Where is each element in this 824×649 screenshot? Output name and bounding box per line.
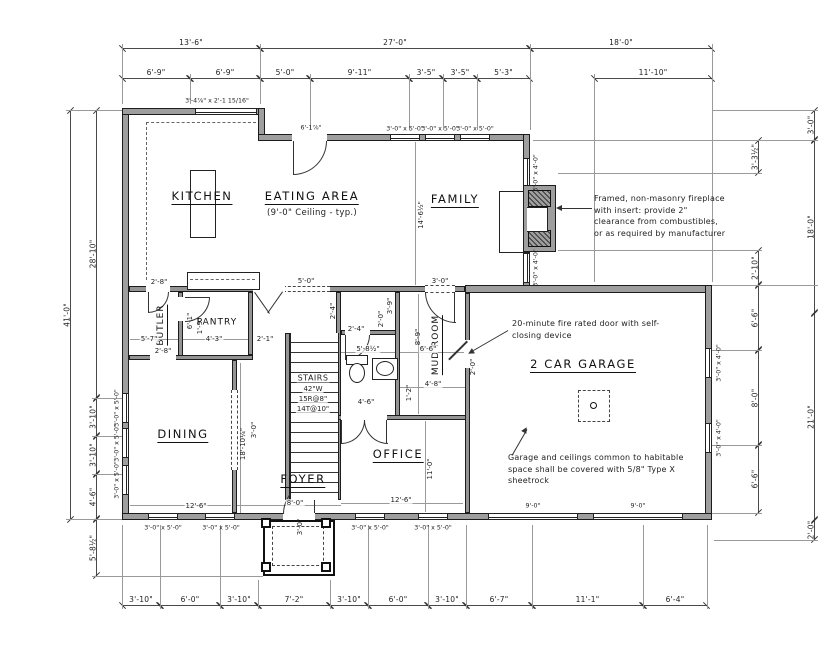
dimension-label: 3'-10" (89, 405, 98, 429)
interior-dim: 3'-0" (431, 277, 450, 285)
extension-line (466, 525, 467, 609)
interior-dim: 2'-0" (377, 310, 385, 329)
window (195, 108, 257, 115)
extension-line (530, 44, 531, 130)
dimension-line: 8'-0" (758, 350, 759, 445)
dimension-line: 27'-0" (260, 48, 530, 49)
dimension-line: 6'-0" (368, 605, 428, 606)
interior-dim: 12'-6" (184, 502, 207, 510)
extension-line (477, 74, 478, 130)
window (122, 428, 129, 458)
extension-line (712, 285, 818, 286)
dimension-label: 41'-0" (63, 303, 72, 327)
interior-dim: 3'-0" (250, 421, 258, 440)
extension-line (428, 525, 429, 609)
stoop-post (321, 518, 331, 528)
wall-segment (465, 285, 712, 293)
garage-door-label: 9'-0" (631, 503, 646, 510)
extension-line (714, 540, 818, 541)
sink-basin (376, 361, 394, 376)
interior-dim: 8'-9" (414, 328, 422, 347)
door-opening (178, 297, 183, 321)
interior-wall (248, 292, 253, 355)
interior-dim: 2'-0" (469, 358, 477, 377)
extension-line (260, 44, 261, 104)
cabinet-line (146, 122, 148, 280)
dimension-line: 21'-0" (814, 313, 815, 520)
dimension-line: 3'-10" (330, 605, 368, 606)
stairs-label: STAIRS (297, 374, 330, 383)
dimension-line: 3'-5" (409, 78, 443, 79)
dimension-line: 6'-6" (758, 285, 759, 350)
dimension-line: 11'-1" (532, 605, 643, 606)
dimension-label: 3'-10" (89, 443, 98, 467)
window-label: 3'-4⅞" x 2'-1 15/16" (185, 98, 249, 105)
window (523, 253, 530, 283)
dimension-line: 3'-10" (96, 398, 97, 436)
interior-wall (465, 293, 470, 513)
extension-line (330, 580, 331, 609)
dimension-label: 13'-6" (179, 38, 203, 47)
dimension-label: 21'-0" (807, 405, 816, 429)
window-label: 3'-0" x 4'-0" (533, 249, 540, 287)
door-label: 6'-1⅞" (300, 125, 321, 132)
dimension-label: 3'-5" (417, 68, 436, 77)
window (148, 513, 178, 520)
cabinet-line (146, 122, 256, 124)
dimension-line: 3'-5" (443, 78, 477, 79)
window (122, 465, 129, 495)
extension-line (443, 74, 444, 130)
interior-dim: 5'-8½" (355, 345, 380, 353)
dimension-line: 6'-4" (643, 605, 707, 606)
window (390, 134, 420, 141)
dimension-label: 18'-0" (807, 215, 816, 239)
interior-dim: 8'-0" (286, 499, 305, 507)
window-label: 3'-0" x 4'-0" (716, 419, 723, 457)
interior-dim: 3'-0" (296, 518, 304, 537)
window (705, 348, 712, 378)
dimension-line: 7'-2" (258, 605, 330, 606)
interior-dim: 2'-8" (150, 278, 169, 286)
interior-dim: 6'-1" (186, 312, 194, 331)
interior-dim: 12'-6" (389, 496, 412, 504)
interior-dim: 2'-8" (154, 347, 173, 355)
leader-line (560, 208, 592, 209)
dimension-line: 3'-3½" (758, 140, 759, 173)
dimension-label: 6'-9" (147, 68, 166, 77)
dimension-line: 6'-9" (122, 78, 190, 79)
dimension-line: 3'-10" (96, 436, 97, 474)
room-label-office: OFFICE (373, 447, 424, 463)
dimension-line: 9'-11" (310, 78, 409, 79)
wall-segment (122, 108, 129, 520)
fireplace-note: Framed, non-masonry fireplace with inser… (594, 193, 726, 239)
dimension-label: 2'-0" (807, 521, 816, 540)
interior-dim: 2'-4" (329, 302, 337, 321)
extension-line (258, 580, 259, 609)
dimension-line: 6'-6" (758, 445, 759, 513)
window-label: 3'-0" x 5'-0" (456, 126, 494, 133)
dimension-label: 3'-3½" (751, 143, 760, 169)
room-label-foyer: FOYER (280, 472, 325, 488)
stoop-post (261, 562, 271, 572)
fire-door-note: 20-minute fire rated door with self-clos… (512, 318, 662, 341)
stairs-riser-note: 15R@8" (298, 395, 328, 403)
interior-dim: 18'-10¼" (239, 427, 247, 461)
pantry-passage (150, 354, 176, 361)
dimension-line: 3'-10" (428, 605, 466, 606)
extension-line (122, 525, 123, 609)
floor-plan-drawing: 13'-6" 27'-0" 18'-0" 6'-9" 6'-9" 5'-0" 9… (0, 0, 824, 649)
window-label: 3'-0" x 5'-0" (144, 525, 182, 532)
dimension-label: 28'-10" (89, 240, 98, 269)
room-label-dining: DINING (157, 427, 208, 443)
wall-segment (705, 285, 712, 520)
garage-door (593, 513, 683, 520)
dimension-line: 11'-10" (594, 78, 712, 79)
stoop-post (261, 518, 271, 528)
interior-dim: 4'-3" (205, 335, 224, 343)
dimension-label: 2'-10" (751, 256, 760, 280)
door-arc (341, 420, 365, 444)
window-label: 3'-0" x 5'-0" (421, 126, 459, 133)
dimension-label: 3'-10" (129, 595, 153, 604)
stairs-tread-note: 14T@10" (296, 405, 330, 413)
column-footing-pin (590, 402, 597, 409)
dimension-line: 6'-9" (190, 78, 260, 79)
dimension-line: 5'-3" (477, 78, 530, 79)
dimension-label: 5'-3" (494, 68, 513, 77)
dimension-label: 6'-0" (389, 595, 408, 604)
dimension-label: 4'-6" (89, 487, 98, 506)
extension-line (558, 173, 762, 174)
interior-dim: 5'-7" (140, 335, 159, 343)
bifold-door-leaf (267, 291, 283, 313)
interior-dim: 2'-1" (256, 335, 275, 343)
dimension-line: 4'-6" (96, 474, 97, 519)
window (705, 423, 712, 453)
extension-line (92, 576, 263, 577)
window-label: 3'-0" x 5'-0" (114, 424, 121, 462)
extension-line (122, 44, 123, 104)
garage-door (488, 513, 578, 520)
dimension-label: 3'-0" (807, 116, 816, 135)
garage-door-label: 9'-0" (526, 503, 541, 510)
interior-dim: 11'-0" (426, 457, 434, 480)
leader-line (470, 330, 509, 353)
extension-line (712, 110, 818, 111)
dimension-label: 3'-10" (435, 595, 459, 604)
cased-opening (283, 286, 330, 292)
arrow-head (553, 205, 562, 211)
interior-dim: 4'-6" (357, 398, 376, 406)
extension-line (368, 525, 369, 609)
dimension-label: 5'-0" (276, 68, 295, 77)
dimension-line: 41'-0" (70, 110, 71, 520)
interior-dim: 1'-9" (196, 317, 204, 336)
extension-line (558, 250, 762, 251)
dimension-label: 5'-8½" (89, 534, 98, 560)
toilet-bowl (349, 363, 365, 383)
extension-line (533, 140, 818, 141)
extension-line (643, 525, 644, 609)
window (355, 513, 385, 520)
extension-line (130, 505, 231, 506)
extension-line (160, 525, 161, 609)
window-label: 3'-0" x 5'-0" (114, 389, 121, 427)
arrow-head (521, 423, 531, 434)
interior-wall (395, 292, 400, 420)
extension-line (707, 525, 708, 609)
window-label: 3'-0" x 5'-0" (114, 461, 121, 499)
window (460, 134, 490, 141)
extension-line (66, 110, 122, 111)
dimension-label: 3'-10" (337, 595, 361, 604)
room-label-family: FAMILY (431, 192, 479, 208)
kitchen-counter (187, 272, 260, 290)
interior-dim: 14'-6½" (417, 200, 425, 230)
dimension-line: 13'-6" (122, 48, 260, 49)
dimension-label: 9'-11" (348, 68, 372, 77)
stairs-width-note: 42"W (302, 385, 323, 393)
extension-line (712, 513, 762, 514)
dimension-line: 5'-8½" (96, 519, 97, 576)
room-label-garage: 2 CAR GARAGE (530, 357, 636, 373)
dimension-label: 11'-10" (639, 68, 668, 77)
door-arc (293, 141, 327, 175)
window-label: 3'-0" x 5'-0" (386, 126, 424, 133)
dimension-label: 27'-0" (383, 38, 407, 47)
window (523, 158, 530, 188)
dimension-label: 3'-10" (227, 595, 251, 604)
room-label-eating-area: EATING AREA (265, 189, 359, 205)
room-label-kitchen: KITCHEN (171, 189, 232, 205)
dimension-label: 7'-2" (285, 595, 304, 604)
interior-dim: 3'-9" (386, 297, 394, 316)
dimension-label: 6'-6" (751, 308, 760, 327)
interior-dim: 4'-8" (424, 380, 443, 388)
window (205, 513, 235, 520)
extension-line (409, 74, 410, 130)
dimension-line: 2'-10" (758, 250, 759, 285)
extension-line (418, 294, 419, 414)
extension-line (532, 525, 533, 609)
dimension-label: 3'-5" (451, 68, 470, 77)
extension-line (310, 74, 311, 130)
extension-line (66, 519, 122, 520)
dimension-line: 3'-10" (220, 605, 258, 606)
dimension-line: 6'-7" (466, 605, 532, 606)
extension-line (415, 142, 416, 285)
fireplace-masonry (528, 230, 551, 247)
dimension-label: 6'-6" (751, 470, 760, 489)
dimension-label: 11'-1" (576, 595, 600, 604)
dimension-label: 6'-0" (181, 595, 200, 604)
interior-dim: 5'-0" (297, 277, 316, 285)
stoop-post (321, 562, 331, 572)
dimension-line: 5'-0" (260, 78, 310, 79)
dimension-label: 6'-7" (490, 595, 509, 604)
interior-dim: 1'-2" (405, 384, 413, 403)
counter-line (190, 279, 255, 281)
door-arc (364, 420, 388, 444)
window (425, 134, 455, 141)
dimension-line: 3'-0" (814, 110, 815, 140)
dimension-line: 6'-0" (160, 605, 220, 606)
dimension-line: 28'-10" (96, 110, 97, 398)
window-label: 3'-0" x 4'-0" (716, 344, 723, 382)
window-label: 3'-0" x 5'-0" (414, 525, 452, 532)
dimension-label: 6'-4" (666, 595, 685, 604)
dimension-label: 6'-9" (216, 68, 235, 77)
cased-opening (231, 390, 238, 470)
window-label: 3'-0" x 4'-0" (533, 154, 540, 192)
dimension-label: 18'-0" (609, 38, 633, 47)
window-label: 3'-0" x 5'-0" (202, 525, 240, 532)
ceiling-note: (9'-0" Ceiling - typ.) (267, 208, 357, 218)
interior-dim: 2'-4" (347, 325, 366, 333)
fireplace-firebox (527, 207, 548, 232)
window (418, 513, 448, 520)
extension-line (220, 525, 221, 609)
extension-line (712, 44, 713, 282)
window (122, 393, 129, 423)
dimension-label: 8'-0" (751, 388, 760, 407)
dimension-line: 2'-0" (814, 520, 815, 540)
window-label: 3'-0" x 5'-0" (351, 525, 389, 532)
fireplace-masonry (528, 190, 551, 207)
dimension-line: 3'-10" (122, 605, 160, 606)
dimension-line: 18'-0" (530, 48, 712, 49)
garage-sheetrock-note: Garage and ceilings common to habitable … (508, 452, 686, 487)
dimension-line: 18'-0" (814, 140, 815, 313)
